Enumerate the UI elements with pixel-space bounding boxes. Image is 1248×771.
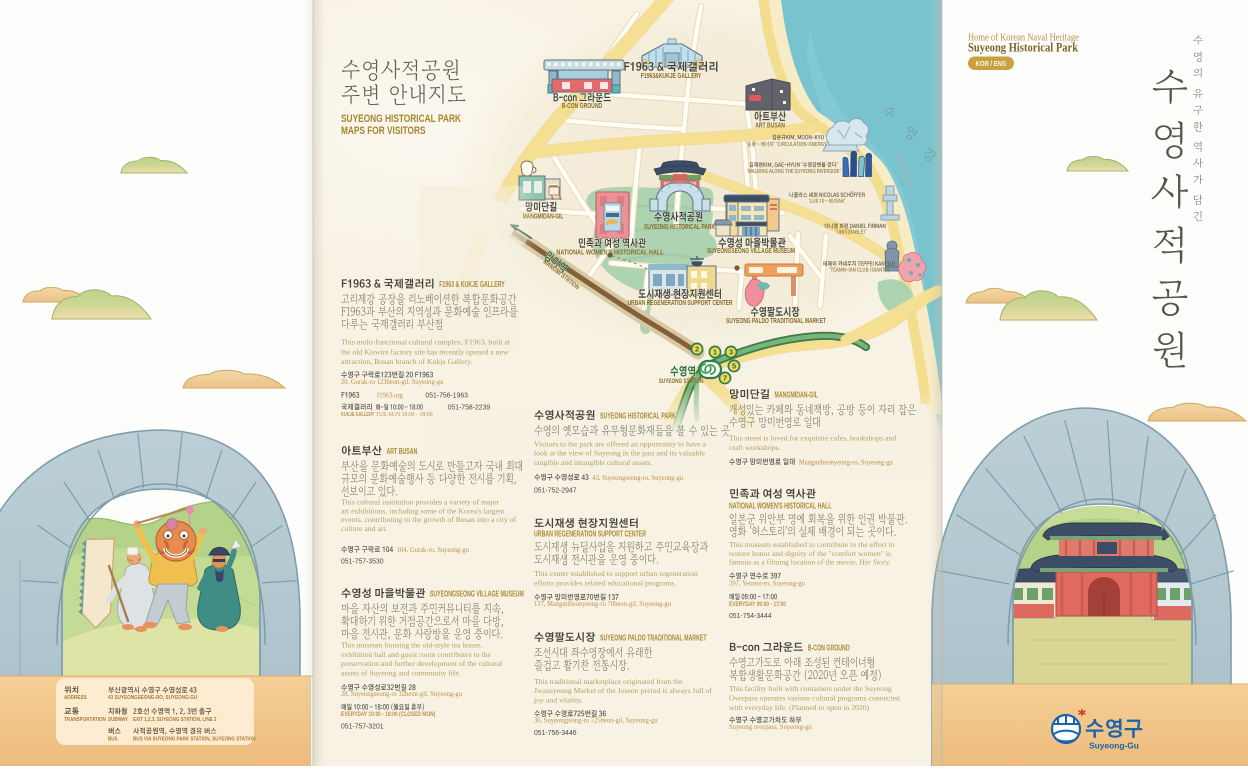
svg-text:F1963 & KUKJE GALLERY: F1963 & KUKJE GALLERY: [439, 280, 505, 289]
svg-text:Suyeong-Gu: Suyeong-Gu: [1089, 741, 1139, 751]
svg-text:051-757-3201: 051-757-3201: [341, 722, 384, 731]
svg-text:attraction, Busan branch of Ku: attraction, Busan branch of Kukje Galler…: [341, 357, 472, 366]
svg-text:137, Mangmibeonyeong-ro 70beon: 137, Mangmibeonyeong-ro 70beon-gil, Suye…: [534, 599, 671, 608]
svg-text:051-757-3530: 051-757-3530: [341, 557, 384, 566]
svg-text:This cultural institution prov: This cultural institution provides a var…: [341, 498, 499, 507]
svg-text:famous as a filming location o: famous as a filming location of the movi…: [729, 558, 859, 567]
svg-text:Jwasuyeong Market of the Joseo: Jwasuyeong Market of the Joseon period i…: [534, 686, 712, 695]
svg-text:KOR / ENG: KOR / ENG: [976, 59, 1007, 68]
svg-text:the old Kiswire factory site h: the old Kiswire factory site has recentl…: [341, 347, 509, 356]
svg-text:restore honor and dignity of t: restore honor and dignity of the "comfor…: [729, 549, 891, 558]
svg-text:exhibition hall and guest room: exhibition hall and guest room contribut…: [341, 650, 491, 659]
svg-text:SUYEONGSEONG VILLAGE MUSEUM: SUYEONGSEONG VILLAGE MUSEUM: [707, 248, 795, 255]
svg-text:KUKJE GALLERY: KUKJE GALLERY: [341, 412, 374, 418]
svg-text:EVERYDAY 09:00 - 17:00: EVERYDAY 09:00 - 17:00: [729, 601, 786, 608]
svg-text:051-754-3444: 051-754-3444: [729, 611, 772, 620]
svg-text:URBAN REGENERATION SUPPORT CEN: URBAN REGENERATION SUPPORT CENTER: [534, 529, 646, 538]
svg-text:28, Suyeongseong-ro 32beon-gil: 28, Suyeongseong-ro 32beon-gil, Suyeong-…: [341, 689, 462, 698]
svg-text:This center established to sup: This center established to support urban…: [534, 569, 698, 578]
svg-text:3: 3: [729, 348, 733, 357]
svg-text:SUYEONGSEONG VILLAGE MUSEUM: SUYEONGSEONG VILLAGE MUSEUM: [430, 590, 524, 599]
svg-text:assets of Suyeong and communit: assets of Suyeong and community life.: [341, 668, 461, 677]
svg-text:397, Yeonsu-ro, Suyeong-gu: 397, Yeonsu-ro, Suyeong-gu: [729, 578, 805, 587]
svg-text:NATIONAL WOMEN'S HISTORICAL HA: NATIONAL WOMEN'S HISTORICAL HALL: [556, 249, 664, 256]
svg-text:EVERYDAY 10:00 - 18:00 (CLOSED: EVERYDAY 10:00 - 18:00 (CLOSED MON): [341, 711, 435, 718]
svg-text:Mangmibeonyeong-ro, Suyeong-gu: Mangmibeonyeong-ro, Suyeong-gu: [799, 457, 893, 466]
svg-text:preservation and further devel: preservation and further development of …: [341, 659, 503, 668]
svg-text:MAPS FOR VISITORS: MAPS FOR VISITORS: [341, 125, 426, 137]
svg-text:051-752-2947: 051-752-2947: [534, 486, 577, 495]
svg-text:Suyeong Historical Park: Suyeong Historical Park: [968, 40, 1078, 54]
svg-text:efforts provides related educa: efforts provides related educational pro…: [534, 579, 676, 588]
svg-text:craft workshops.: craft workshops.: [729, 443, 781, 452]
svg-text:BUS VIA SUYEONG PARK STATION,: BUS VIA SUYEONG PARK STATION, SUYEONG ST…: [133, 737, 256, 743]
svg-text:MANGMIDAN-GIL: MANGMIDAN-GIL: [775, 391, 819, 400]
svg-text:ART BUSAN: ART BUSAN: [755, 120, 785, 129]
svg-text:B-CON GROUND: B-CON GROUND: [562, 101, 602, 110]
svg-text:ADDRESS: ADDRESS: [64, 695, 87, 701]
svg-text:2: 2: [695, 345, 699, 354]
svg-text:culture and art.: culture and art.: [341, 524, 388, 533]
svg-text:look at the view of Suyeong in: look at the view of Suyeong in the past …: [534, 449, 705, 458]
svg-text:Visitors to the park are offer: Visitors to the park are offered an oppo…: [534, 439, 707, 448]
svg-text:This street is loved for exqui: This street is loved for exquisite cafes…: [729, 434, 896, 443]
svg-text:ART BUSAN: ART BUSAN: [387, 447, 418, 456]
svg-text:joy and vitality.: joy and vitality.: [533, 695, 583, 704]
svg-text:SUYEONG HISTORICAL PARK: SUYEONG HISTORICAL PARK: [644, 224, 715, 231]
svg-text:This traditional marketplace o: This traditional marketplace originated …: [534, 677, 683, 686]
svg-text:SUYEONG PALDO TRADITIONAL MARK: SUYEONG PALDO TRADITIONAL MARKET: [726, 318, 826, 325]
svg-text:Her Story.: Her Story.: [858, 558, 891, 567]
svg-text:1: 1: [713, 348, 717, 357]
svg-text:This multi-functional cultural: This multi-functional cultural complex, …: [341, 338, 511, 347]
svg-text:43 SUYEONGSEONG-RO, SUYEONG-GU: 43 SUYEONGSEONG-RO, SUYEONG-GU: [108, 695, 197, 701]
svg-text:TUE-SUN 10:00 - 18:00: TUE-SUN 10:00 - 18:00: [376, 411, 433, 418]
svg-text:with everyday life. (Planned t: with everyday life. (Planned to open in …: [729, 703, 870, 712]
svg-text:art exhibitions, including som: art exhibitions, including some of the K…: [341, 506, 505, 515]
svg-text:Suyeong overpass, Suyeong-gu: Suyeong overpass, Suyeong-gu: [729, 722, 812, 731]
svg-text:5: 5: [732, 362, 736, 371]
svg-text:This facility built with conta: This facility built with containers unde…: [729, 684, 892, 693]
svg-text:051-756-1963: 051-756-1963: [425, 391, 468, 400]
svg-text:URBAN REGENERATION SUPPORT CEN: URBAN REGENERATION SUPPORT CENTER: [628, 300, 733, 307]
svg-text:Overpass operates various cult: Overpass operates various cultural progr…: [729, 694, 900, 703]
svg-text:051-758-2239: 051-758-2239: [448, 403, 491, 412]
svg-text:7: 7: [723, 374, 727, 383]
svg-text:104, Gurak-ro, Suyeong-gu: 104, Gurak-ro, Suyeong-gu: [397, 545, 470, 554]
svg-text:EXIT 1,2,3, SUYEONG STATION, L: EXIT 1,2,3, SUYEONG STATION, LINE 2: [133, 717, 216, 723]
svg-text:SUYEONG STATION: SUYEONG STATION: [659, 378, 704, 385]
svg-text:This museum established to con: This museum established to contribute to…: [729, 540, 895, 549]
svg-text:This museum housing the old-st: This museum housing the old-style tea ho…: [341, 641, 482, 650]
svg-text:SUYEONG PALDO TRADITIONAL MARK: SUYEONG PALDO TRADITIONAL MARKET: [600, 634, 707, 643]
svg-text:BUS: BUS: [108, 737, 118, 743]
svg-text:36, Suyeongjeong-ro 725beon-gi: 36, Suyeongjeong-ro 725beon-gil, Suyeong…: [534, 716, 658, 725]
svg-text:051-756-3446: 051-756-3446: [534, 728, 577, 737]
svg-text:TRANSPORTATION: TRANSPORTATION: [64, 717, 106, 723]
svg-text:NATIONAL WOMEN'S HISTORICAL HA: NATIONAL WOMEN'S HISTORICAL HALL: [729, 502, 832, 511]
svg-text:20, Gurak-ro 123beon-gil, Suye: 20, Gurak-ro 123beon-gil, Suyeong-gu: [341, 377, 444, 386]
svg-text:SUYEONG HISTORICAL PARK: SUYEONG HISTORICAL PARK: [600, 412, 676, 421]
svg-text:F1963&KUKJE GALLERY: F1963&KUKJE GALLERY: [641, 71, 702, 80]
svg-text:SUYEONG HISTORICAL PARK: SUYEONG HISTORICAL PARK: [341, 113, 461, 125]
svg-text:f1963.org: f1963.org: [377, 391, 403, 400]
svg-text:tangible and intangible cultur: tangible and intangible cultural assets.: [534, 458, 652, 467]
svg-text:events, contributing to the gr: events, contributing to the growth of Bu…: [341, 515, 517, 524]
svg-text:SUBWAY: SUBWAY: [108, 717, 128, 723]
svg-text:43, Suyeongseong-ro, Suyeong-g: 43, Suyeongseong-ro, Suyeong-gu: [592, 473, 683, 482]
svg-text:B-CON GROUND: B-CON GROUND: [808, 644, 850, 653]
